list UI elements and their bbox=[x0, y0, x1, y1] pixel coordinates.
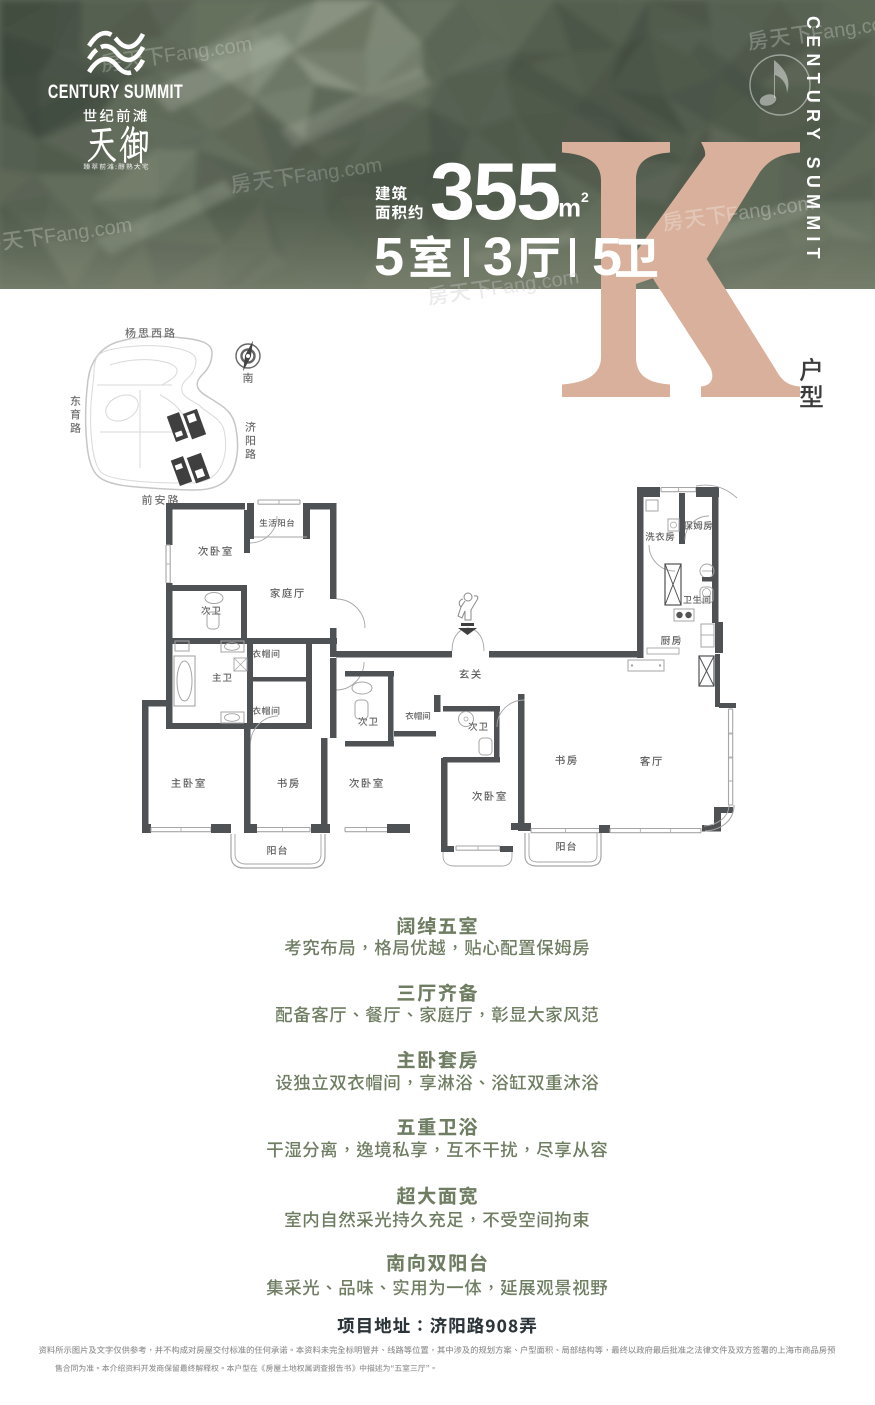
svg-text:5: 5 bbox=[592, 227, 622, 287]
svg-text:2: 2 bbox=[581, 189, 589, 205]
svg-text:CENTURY SUMMIT: CENTURY SUMMIT bbox=[48, 81, 183, 102]
svg-text:5: 5 bbox=[374, 227, 404, 287]
svg-text:m: m bbox=[558, 193, 581, 223]
svg-text:355: 355 bbox=[430, 147, 559, 237]
svg-text:CENTURY SUMMIT: CENTURY SUMMIT bbox=[803, 16, 823, 265]
